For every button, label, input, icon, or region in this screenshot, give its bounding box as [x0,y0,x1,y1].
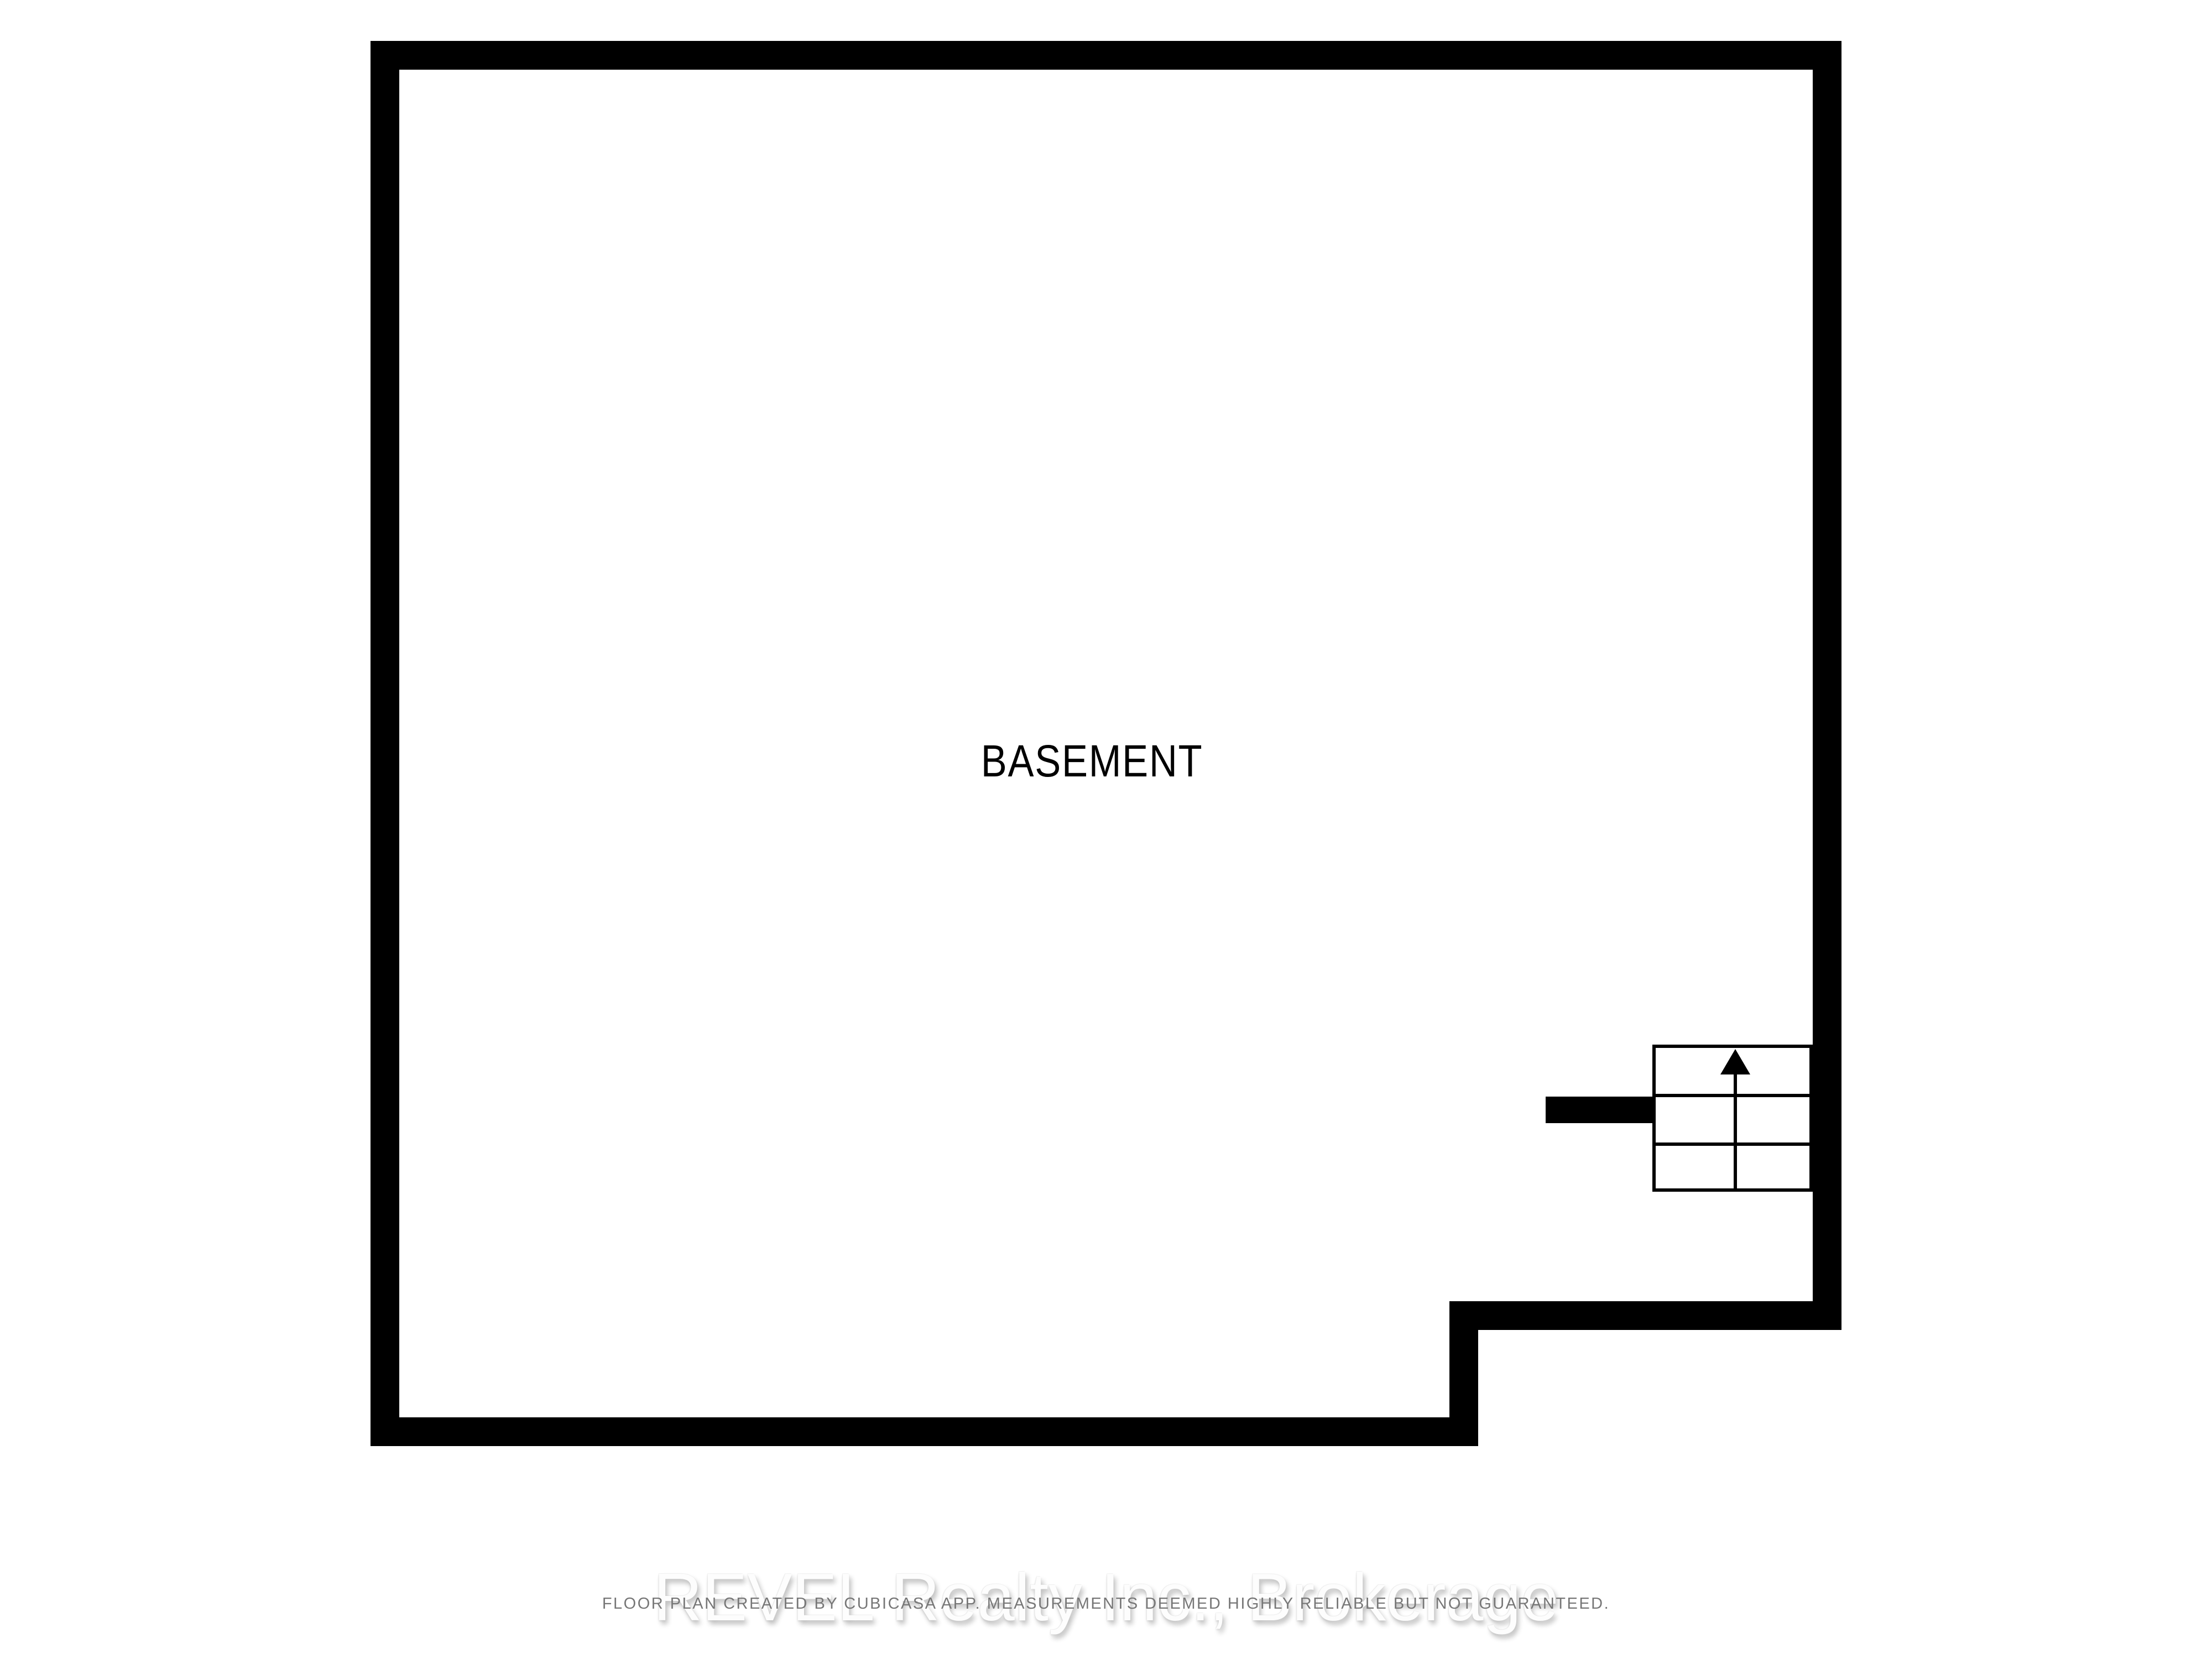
stairs-up-arrow-icon [1720,1049,1750,1074]
floorplan-page: { "plan": { "room_label": "BASEMENT", "s… [0,0,2212,1659]
stair-tread-line [1656,1142,1809,1146]
wall-bottom-main [371,1417,1478,1446]
wall-top [371,41,1841,70]
wall-notch-step [1449,1301,1478,1446]
wall-right [1813,41,1841,1330]
disclaimer-text: FLOOR PLAN CREATED BY CUBICASA APP. MEAS… [0,1595,2212,1613]
staircase [1652,1045,1813,1192]
wall-bottom-right-notch [1449,1301,1841,1330]
wall-left [371,41,399,1446]
room-label: BASEMENT [760,735,1424,787]
stair-tread-line [1656,1094,1809,1097]
wall-stair-stub [1546,1097,1652,1123]
stair-center-line [1734,1073,1737,1188]
room-label-text: BASEMENT [981,735,1203,787]
